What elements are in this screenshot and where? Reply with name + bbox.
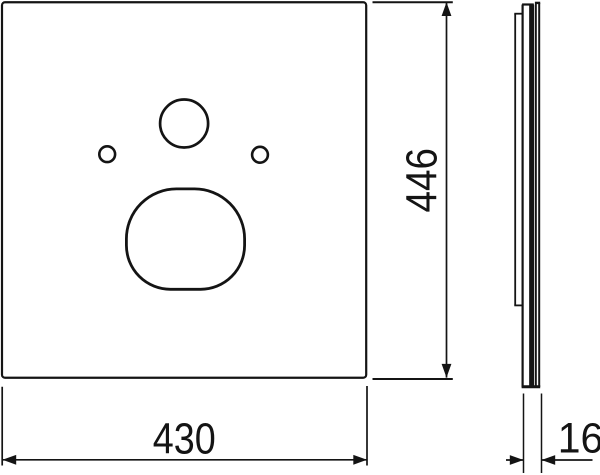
svg-text:430: 430 [153,415,216,464]
svg-text:446: 446 [398,148,447,213]
svg-text:16: 16 [558,414,600,462]
